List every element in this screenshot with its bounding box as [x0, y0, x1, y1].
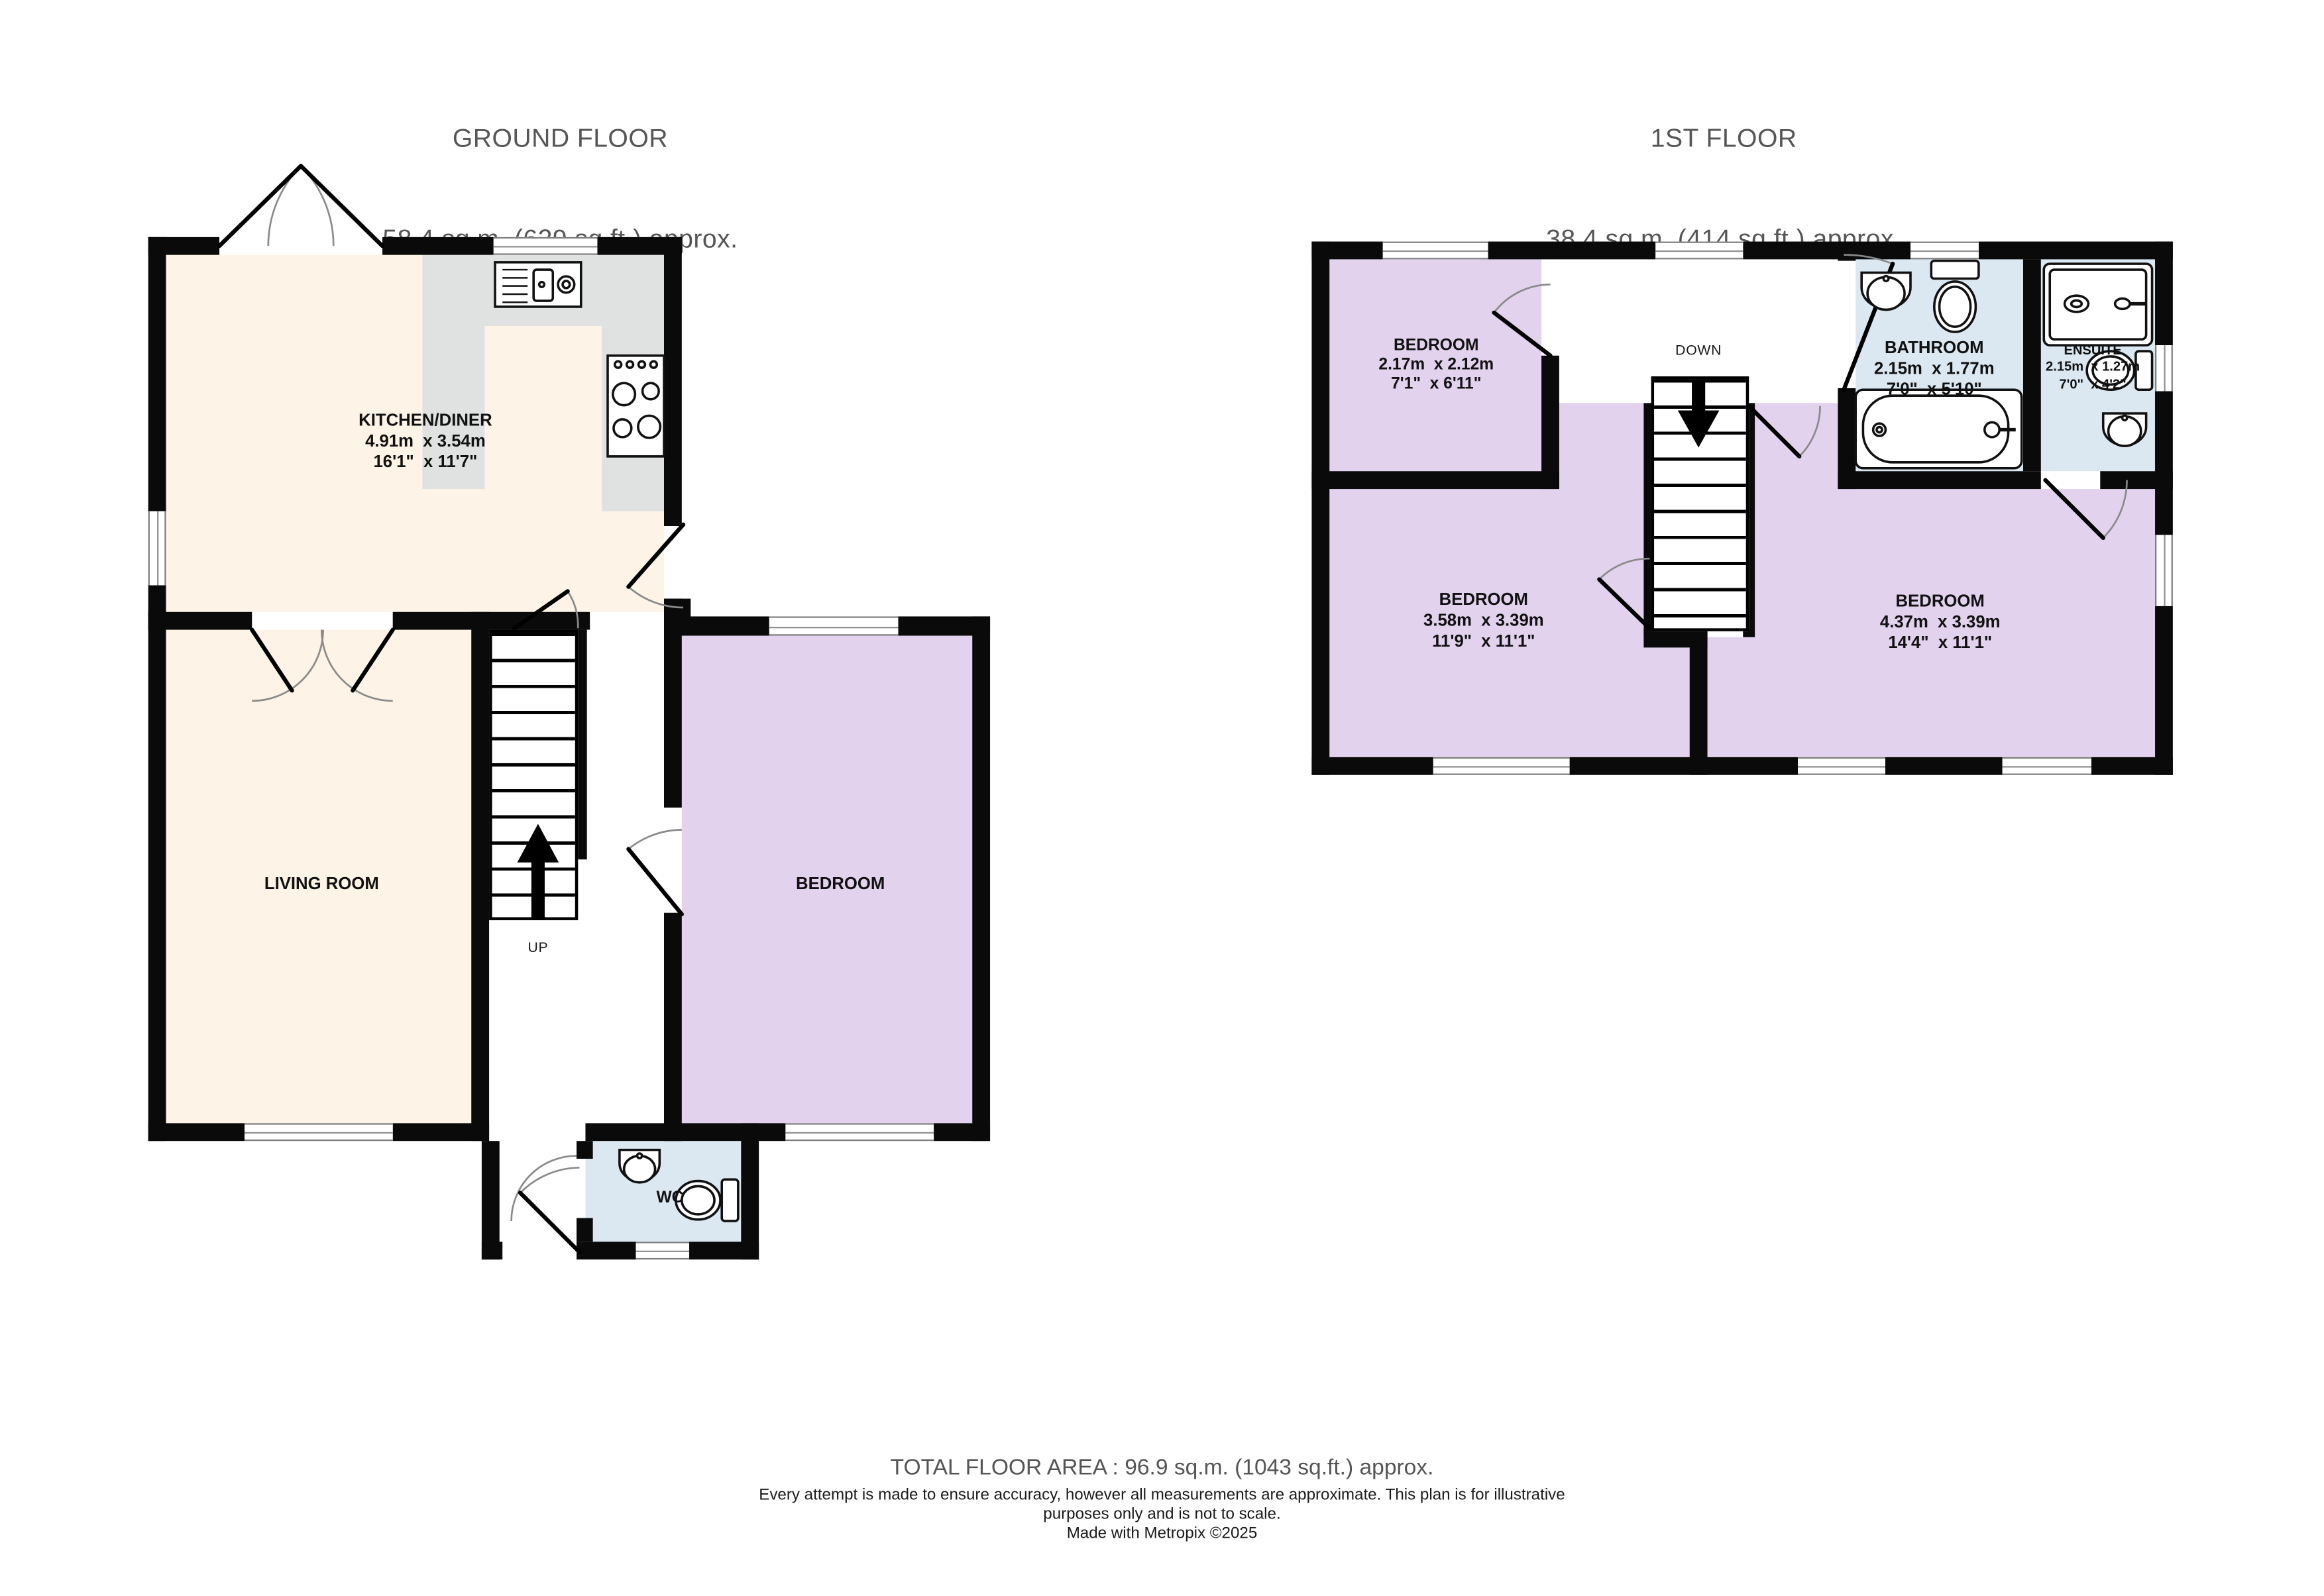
wall — [1311, 242, 1329, 775]
room-dims-imperial: 7'0" x 5'10" — [1874, 381, 1995, 401]
label-bedroom-1: BEDROOM 2.17m x 2.12m 7'1" x 6'11" — [1378, 337, 1494, 395]
room-name: BEDROOM — [1423, 592, 1544, 612]
wall — [148, 237, 166, 511]
label-ensuite: ENSUITE 2.15m x 1.27m 7'0" x 4'2" — [2046, 343, 2140, 392]
floorplan-page: GROUND FLOOR 58.4 sq.m. (629 sq.ft.) app… — [0, 0, 2324, 1596]
room-name: BEDROOM — [796, 876, 885, 896]
wall — [1885, 757, 2003, 775]
window — [2155, 535, 2173, 606]
room-name: WC — [656, 1189, 683, 1208]
room-name: KITCHEN/DINER — [359, 412, 492, 433]
wall — [664, 913, 682, 1141]
wall — [972, 616, 990, 1141]
label-bedroom-ground: BEDROOM — [796, 876, 885, 896]
wall — [1541, 356, 1559, 489]
room-dims-imperial: 16'1" x 11'7" — [359, 453, 492, 474]
room-name: LIVING ROOM — [264, 876, 379, 896]
window — [1383, 242, 1488, 260]
window — [1655, 242, 1743, 260]
wall — [1690, 628, 1708, 774]
wall — [664, 616, 769, 635]
wall — [577, 1141, 593, 1159]
door-leaf — [301, 166, 382, 246]
window — [785, 1123, 934, 1141]
wall — [482, 1242, 502, 1259]
door-leaf — [520, 1193, 579, 1251]
window — [148, 511, 166, 586]
ground-floor-title-line: GROUND FLOOR — [382, 121, 738, 154]
room-name: BEDROOM — [1880, 593, 2001, 613]
door-leaf — [219, 166, 301, 246]
door-arc — [628, 830, 682, 849]
wall — [2155, 606, 2173, 775]
disclaimer-text: Every attempt is made to ensure accuracy… — [756, 1486, 1569, 1524]
room-name: BEDROOM — [1378, 337, 1494, 356]
room-dims-metric: 2.15m x 1.77m — [1874, 360, 1995, 381]
label-stairs-up: UP — [527, 940, 548, 957]
metropix-credit: Made with Metropix ©2025 — [1067, 1524, 1258, 1542]
label-bathroom: BATHROOM 2.15m x 1.77m 7'0" x 5'10" — [1874, 340, 1995, 401]
door-arc — [268, 166, 301, 246]
window — [1433, 757, 1570, 775]
window — [636, 1242, 690, 1259]
wall — [664, 237, 682, 526]
wall — [1488, 242, 1656, 260]
window — [1910, 242, 1979, 260]
window — [2003, 757, 2091, 775]
door-arc — [520, 1167, 579, 1193]
wall — [577, 1218, 593, 1242]
first-floor-title: 1ST FLOOR 38.4 sq.m. (414 sq.ft.) approx… — [1546, 54, 1901, 323]
wall — [393, 612, 590, 630]
room-dims-metric: 4.37m x 3.39m — [1880, 613, 2001, 634]
label-kitchen-diner: KITCHEN/DINER 4.91m x 3.54m 16'1" x 11'7… — [359, 412, 492, 474]
wall — [2023, 259, 2041, 471]
window — [2155, 345, 2173, 391]
label-living-room: LIVING ROOM — [264, 876, 379, 896]
room-name: ENSUITE — [2046, 343, 2140, 359]
room-bedroom-2 — [1559, 403, 1643, 489]
room-dims-metric: 2.15m x 1.27m — [2046, 359, 2140, 376]
total-floor-area: TOTAL FLOOR AREA : 96.9 sq.m. (1043 sq.f… — [891, 1455, 1434, 1480]
wall — [1311, 471, 1559, 489]
first-floor-title-line: 1ST FLOOR — [1546, 121, 1901, 154]
door-arc — [512, 1156, 577, 1221]
wall — [1311, 757, 1433, 775]
window — [769, 616, 899, 635]
wall — [1979, 242, 2173, 260]
label-bedroom-2: BEDROOM 3.58m x 3.39m 11'9" x 11'1" — [1423, 592, 1544, 653]
wall — [382, 237, 494, 255]
label-stairs-down: DOWN — [1675, 343, 1722, 360]
room-dims-metric: 2.17m x 2.12m — [1378, 356, 1494, 376]
room-dims-imperial: 7'1" x 6'11" — [1378, 376, 1494, 395]
room-dims-metric: 3.58m x 3.39m — [1423, 612, 1544, 633]
wall — [393, 1123, 489, 1141]
window — [1798, 757, 1885, 775]
label-wc: WC — [656, 1189, 683, 1208]
kitchen-counter — [422, 255, 664, 326]
door-arc — [301, 166, 333, 246]
label-bedroom-3: BEDROOM 4.37m x 3.39m 14'4" x 11'1" — [1880, 593, 2001, 655]
wall — [1570, 757, 1798, 775]
wall — [2155, 391, 2173, 535]
wall — [471, 612, 489, 1141]
wall — [1838, 471, 2040, 489]
room-dims-metric: 4.91m x 3.54m — [359, 433, 492, 453]
wall — [1838, 242, 1855, 261]
door-leaf — [628, 849, 682, 914]
kitchen-counter — [602, 326, 664, 511]
staircase-down — [1651, 376, 1749, 631]
wall — [148, 612, 166, 1141]
floorplan-stage: GROUND FLOOR 58.4 sq.m. (629 sq.ft.) app… — [0, 0, 2324, 1596]
window — [494, 237, 598, 255]
room-dims-imperial: 14'4" x 11'1" — [1880, 634, 2001, 655]
staircase-up — [489, 630, 578, 920]
wall — [741, 1123, 759, 1259]
window — [245, 1123, 393, 1141]
wall — [1743, 242, 1910, 260]
room-dims-imperial: 11'9" x 11'1" — [1423, 633, 1544, 653]
wall — [2155, 242, 2173, 346]
room-dims-imperial: 7'0" x 4'2" — [2046, 376, 2140, 392]
room-name: BATHROOM — [1874, 340, 1995, 360]
wall — [148, 1123, 245, 1141]
wall — [2100, 471, 2173, 489]
wall — [577, 1242, 636, 1259]
